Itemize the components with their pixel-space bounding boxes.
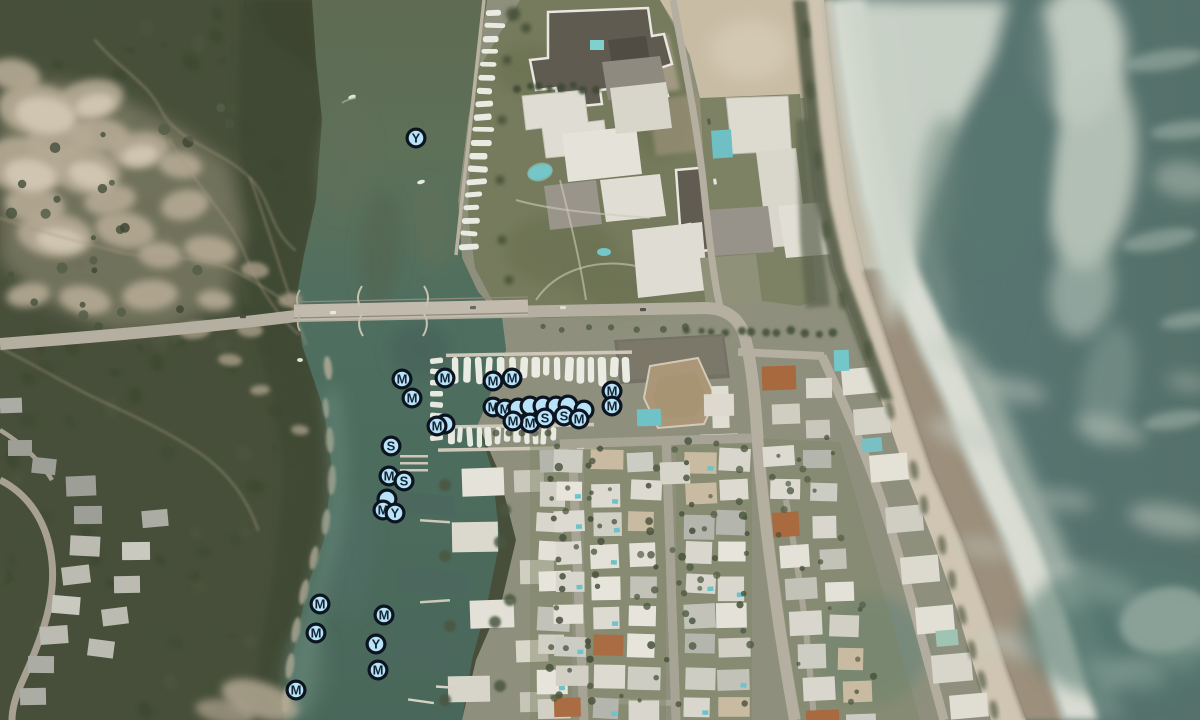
svg-text:Y: Y: [372, 637, 381, 652]
svg-text:M: M: [373, 663, 384, 678]
svg-text:M: M: [315, 597, 326, 612]
svg-text:S: S: [560, 409, 569, 424]
svg-text:M: M: [574, 412, 585, 427]
svg-text:S: S: [387, 439, 396, 454]
svg-text:M: M: [525, 416, 536, 431]
svg-text:M: M: [440, 371, 451, 386]
svg-text:M: M: [379, 608, 390, 623]
svg-text:Y: Y: [412, 131, 421, 146]
svg-text:S: S: [541, 411, 550, 426]
svg-text:M: M: [432, 419, 443, 434]
svg-text:M: M: [607, 399, 618, 414]
svg-text:M: M: [508, 414, 519, 429]
svg-text:M: M: [507, 371, 518, 386]
svg-text:M: M: [397, 372, 408, 387]
svg-text:M: M: [407, 391, 418, 406]
svg-text:M: M: [488, 374, 499, 389]
svg-text:Y: Y: [391, 506, 400, 521]
svg-text:S: S: [400, 474, 409, 489]
svg-text:M: M: [311, 626, 322, 641]
svg-text:M: M: [384, 469, 395, 484]
svg-text:M: M: [291, 683, 302, 698]
